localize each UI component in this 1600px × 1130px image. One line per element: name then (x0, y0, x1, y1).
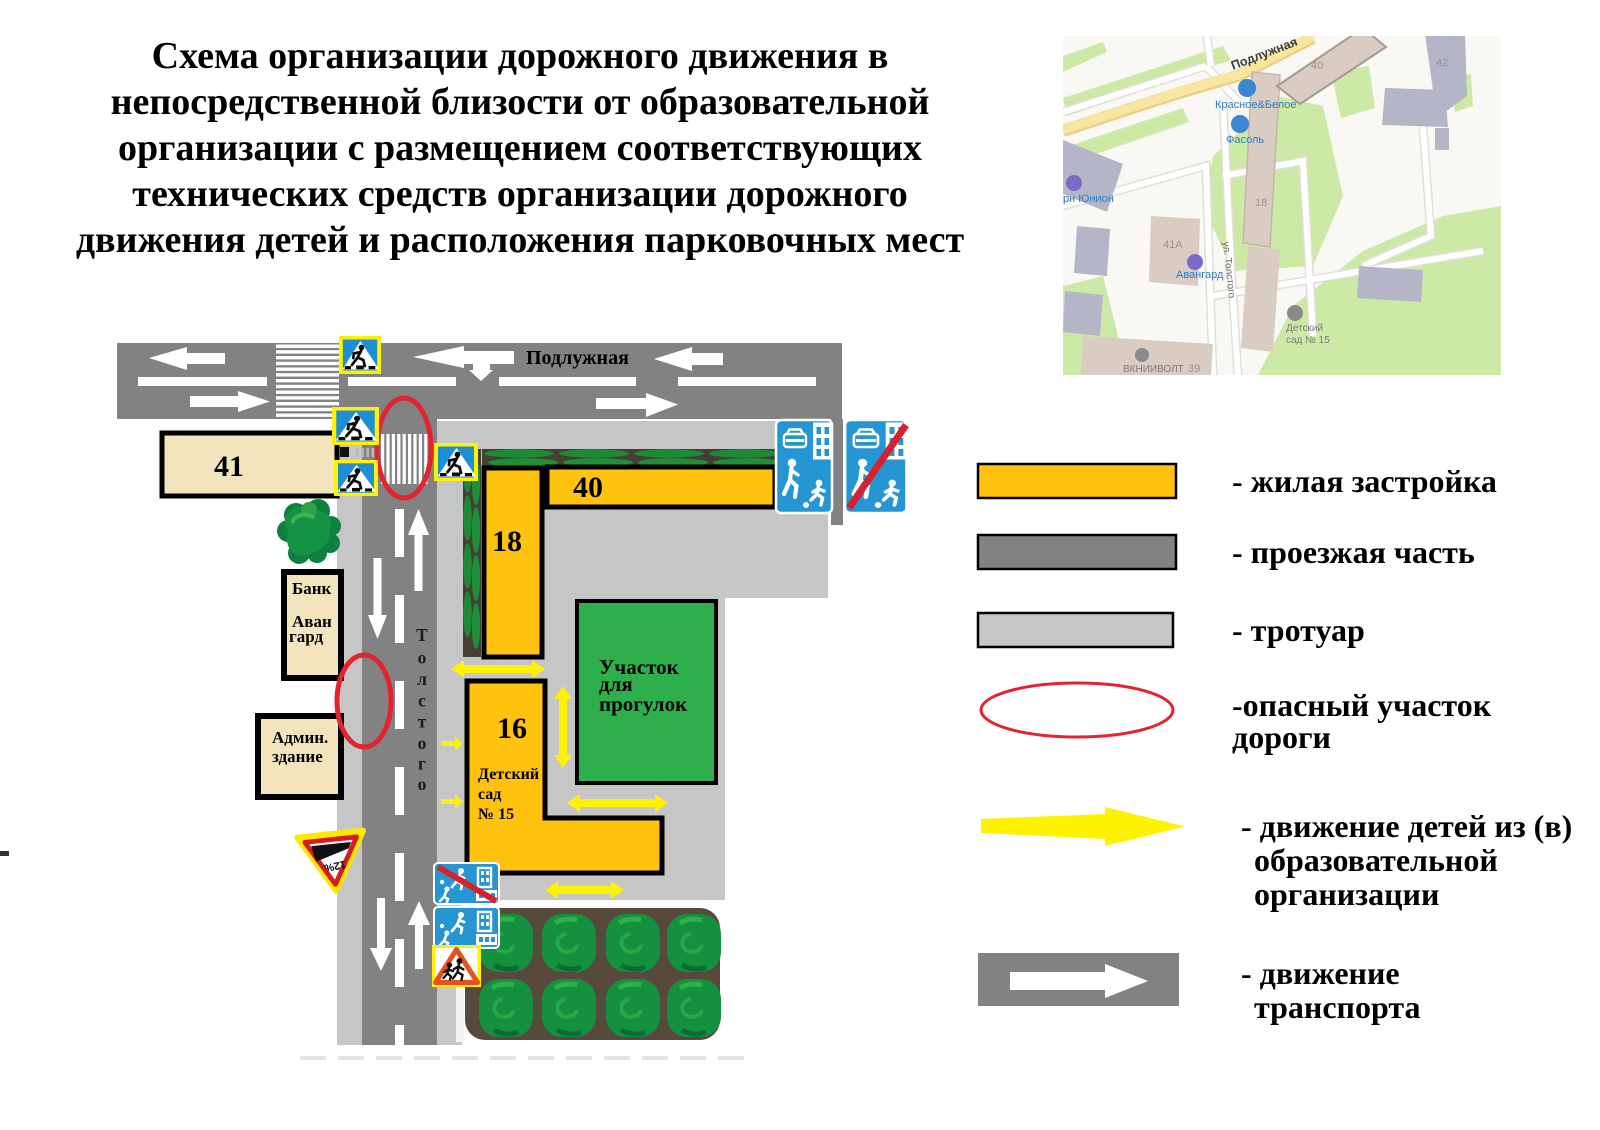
svg-text:гард: гард (289, 627, 323, 646)
svg-text:-опасный участок: -опасный участок (1232, 687, 1492, 723)
svg-text:л: л (417, 669, 427, 689)
svg-text:Банк: Банк (292, 579, 332, 598)
svg-text:- проезжая часть: - проезжая часть (1232, 534, 1475, 570)
svg-text:с: с (418, 691, 426, 711)
svg-text:16: 16 (497, 712, 527, 745)
svg-text:№ 15: № 15 (478, 806, 514, 823)
svg-text:о: о (418, 733, 427, 753)
svg-text:сад № 15: сад № 15 (1286, 335, 1330, 346)
svg-text:транспорта: транспорта (1254, 989, 1420, 1025)
svg-text:сад: сад (478, 786, 501, 803)
svg-text:- движение детей из (в): - движение детей из (в) (1241, 808, 1572, 844)
svg-text:Детский: Детский (1286, 323, 1323, 334)
svg-text:Админ.: Админ. (272, 728, 328, 747)
svg-text:дороги: дороги (1232, 719, 1331, 755)
svg-text:ВКНИИВОЛТ: ВКНИИВОЛТ (1123, 364, 1184, 375)
svg-text:Детский: Детский (478, 766, 539, 783)
svg-text:- движение: - движение (1241, 955, 1400, 991)
svg-text:42: 42 (1436, 57, 1448, 69)
svg-text:Красное&Белое: Красное&Белое (1215, 99, 1297, 111)
svg-text:18: 18 (492, 525, 522, 558)
svg-text:рн Юнион: рн Юнион (1063, 193, 1114, 205)
svg-text:40: 40 (573, 471, 603, 504)
svg-text:41: 41 (214, 450, 244, 483)
svg-text:41А: 41А (1163, 239, 1183, 251)
svg-text:организации: организации (1254, 876, 1439, 912)
svg-text:39: 39 (1188, 363, 1200, 375)
svg-text:40: 40 (1311, 60, 1323, 72)
svg-text:Авангард: Авангард (1176, 269, 1224, 281)
svg-text:18: 18 (1255, 197, 1267, 209)
svg-text:т: т (418, 712, 427, 732)
svg-text:о: о (418, 648, 427, 668)
svg-text:- жилая застройка: - жилая застройка (1232, 463, 1497, 499)
svg-text:Фасоль: Фасоль (1226, 134, 1264, 146)
svg-text:прогулок: прогулок (599, 692, 688, 716)
svg-text:образовательной: образовательной (1254, 842, 1498, 878)
svg-text:здание: здание (272, 747, 323, 766)
svg-text:Подлужная: Подлужная (526, 347, 629, 369)
svg-text:о: о (418, 774, 427, 794)
svg-text:Т: Т (416, 625, 428, 645)
svg-text:- тротуар: - тротуар (1232, 612, 1365, 648)
svg-text:г: г (418, 754, 426, 774)
